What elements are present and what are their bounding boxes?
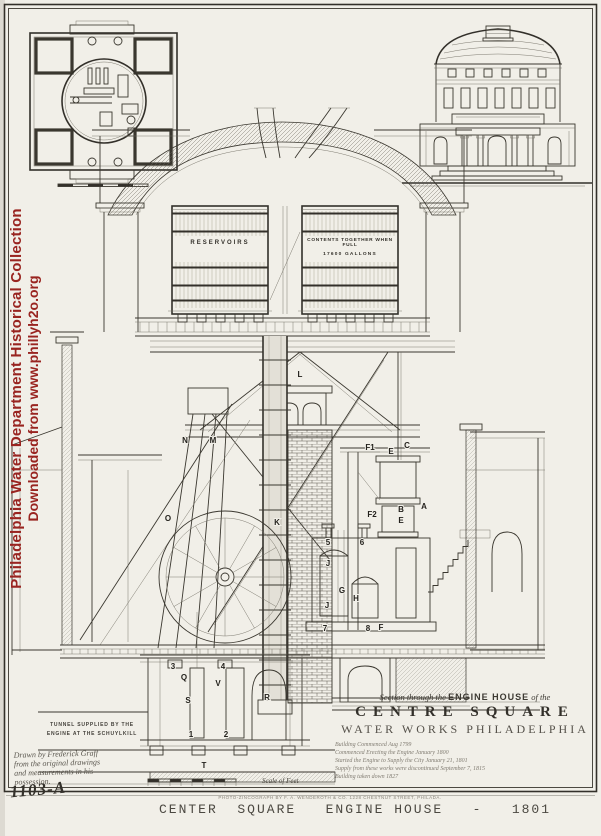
dome (436, 29, 560, 64)
pump-barrel-left (190, 668, 204, 738)
label-h: H (353, 594, 359, 603)
label-q: Q (181, 673, 187, 682)
label-c: C (404, 441, 410, 450)
watermark-text: Philadelphia Water Department Historical… (8, 185, 46, 612)
arch-piers (96, 203, 468, 332)
title-block-notes: Building Commenced Aug 1799Commenced Ere… (335, 741, 595, 781)
label-4: 4 (221, 662, 226, 671)
label-6: 6 (360, 538, 365, 547)
arched-recess (492, 532, 522, 592)
label-2: 2 (224, 730, 229, 739)
label-j: J (325, 601, 329, 610)
right-wing (470, 432, 545, 650)
title-note: Commenced Erecting the Engine January 18… (335, 749, 595, 757)
tunnel-note: TUNNEL SUPPLIED BY THE ENGINE AT THE SCH… (42, 721, 142, 738)
label-s: S (185, 696, 191, 705)
left-wall (50, 332, 162, 645)
portico-columns (461, 135, 535, 166)
reservoir-right-label1: CONTENTS TOGETHER WHEN FULL (302, 238, 398, 248)
label-7: 7 (323, 624, 328, 633)
label-f: F (379, 623, 384, 632)
plan-room-ne (135, 39, 171, 73)
title-note: Started the Engine to Supply the City Ja… (335, 757, 595, 765)
title-line1-suffix: of the (529, 692, 550, 702)
tank-floor (135, 318, 430, 336)
drum-windows (444, 69, 555, 108)
watermark-line2: Downloaded from www.phillyh2o.org (25, 185, 41, 612)
tunnel-note-line2: ENGINE AT THE SCHUYLKILL (42, 730, 142, 739)
title-line2: CENTRE SQUARE (335, 704, 595, 721)
label-f2: F2 (367, 510, 377, 519)
entry-door-arch (488, 136, 506, 166)
label-o: O (165, 514, 171, 523)
plan-room-nw (36, 39, 72, 73)
building-elevation (402, 26, 592, 186)
credit-line: PHOTO-ZINCOGRAPH BY F. A. WENDEROTH & CO… (160, 795, 500, 800)
tunnel-note-line1: TUNNEL SUPPLIED BY THE (42, 721, 142, 730)
label-g: G (339, 586, 345, 595)
label-j: J (326, 559, 330, 568)
label-v: V (215, 679, 221, 688)
plan-machinery (70, 68, 138, 136)
label-r: R (264, 693, 270, 702)
label-8: 8 (366, 624, 371, 633)
stairs (428, 530, 490, 592)
right-wall (460, 424, 545, 648)
label-3: 3 (171, 662, 176, 671)
steam-cylinder (380, 462, 416, 498)
label-k: K (274, 518, 280, 527)
label-5: 5 (326, 538, 331, 547)
reservoir-right-label2: 17600 GALLONS (302, 252, 398, 257)
title-line1-emphasis: ENGINE HOUSE (448, 692, 529, 702)
title-line3: WATER WORKS PHILADELPHIA (335, 722, 595, 737)
label-e: E (398, 516, 404, 525)
label-m: M (210, 436, 217, 445)
cross-section (12, 108, 545, 786)
scanned-plate: LNMOKF1ECF2BEAJGHJ5678F34QVSR12TScale of… (0, 0, 601, 836)
timber-masts (80, 352, 388, 648)
label-1: 1 (189, 730, 194, 739)
label-scale-of-feet: Scale of Feet (262, 777, 300, 785)
watermark-line1: Philadelphia Water Department Historical… (8, 185, 25, 612)
bottom-caption: CENTER SQUARE ENGINE HOUSE - 1801 (120, 802, 590, 817)
pump-barrel-right (226, 668, 244, 738)
reservoir-tanks (168, 206, 402, 322)
label-l: L (298, 370, 303, 379)
title-note: Supply from these works were discontinue… (335, 765, 595, 773)
plan-room-sw (36, 130, 72, 164)
title-line1: Section through the ENGINE HOUSE of the (335, 692, 595, 702)
title-note: Building Commenced Aug 1799 (335, 741, 595, 749)
title-line1-prefix: Section through the (380, 692, 448, 702)
title-block: Section through the ENGINE HOUSE of the … (335, 692, 595, 781)
label-f1: F1 (365, 443, 375, 452)
label-t: T (202, 761, 207, 770)
label-b: B (398, 505, 404, 514)
title-note: Building taken down 1827 (335, 773, 595, 781)
label-e: E (388, 447, 394, 456)
label-n: N (182, 436, 188, 445)
reservoir-left-label: RESERVOIRS (172, 240, 268, 246)
label-a: A (421, 502, 427, 511)
